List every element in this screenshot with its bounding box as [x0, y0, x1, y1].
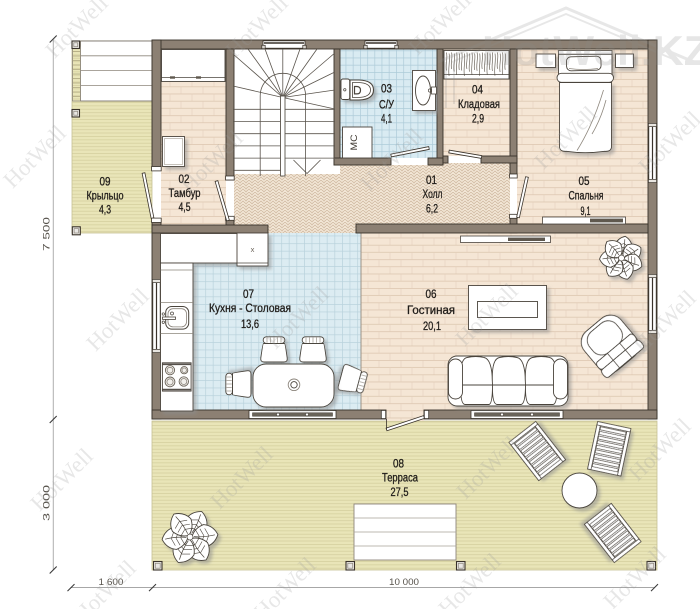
svg-text:HotWell: HotWell — [0, 120, 71, 192]
svg-text:27,5: 27,5 — [391, 487, 409, 499]
svg-text:Кладовая: Кладовая — [458, 99, 500, 111]
svg-text:Крыльцо: Крыльцо — [87, 191, 124, 203]
svg-text:Спальня: Спальня — [569, 191, 604, 203]
svg-text:07: 07 — [243, 289, 254, 301]
svg-text:4,5: 4,5 — [179, 202, 191, 214]
svg-text:HotWell: HotWell — [25, 443, 97, 515]
svg-text:Терраса: Терраса — [382, 473, 418, 485]
svg-text:03: 03 — [381, 84, 392, 96]
svg-text:2,9: 2,9 — [472, 114, 484, 126]
svg-text:09: 09 — [100, 177, 111, 189]
svg-text:20,1: 20,1 — [423, 321, 441, 333]
svg-text:6,2: 6,2 — [426, 204, 438, 216]
svg-text:9,1: 9,1 — [581, 206, 591, 218]
svg-text:Кухня - Столовая: Кухня - Столовая — [209, 303, 291, 315]
svg-text:С/У: С/У — [379, 100, 395, 112]
svg-text:7 500: 7 500 — [42, 217, 53, 251]
svg-text:x: x — [251, 245, 255, 254]
svg-text:05: 05 — [579, 176, 590, 188]
svg-text:01: 01 — [426, 175, 437, 187]
svg-text:06: 06 — [426, 289, 437, 301]
svg-text:08: 08 — [393, 459, 404, 471]
svg-text:МС: МС — [349, 134, 359, 151]
svg-text:4,3: 4,3 — [99, 205, 111, 217]
svg-text:Гостиная: Гостиная — [407, 305, 455, 317]
svg-text:HotWell.KZ: HotWell.KZ — [482, 27, 700, 74]
svg-text:Холл: Холл — [423, 189, 443, 201]
svg-text:HotWell: HotWell — [81, 283, 153, 355]
svg-text:13,6: 13,6 — [241, 319, 259, 331]
svg-text:HotWell: HotWell — [68, 555, 140, 609]
svg-text:04: 04 — [472, 85, 484, 97]
svg-text:4,1: 4,1 — [381, 114, 392, 126]
svg-text:10 000: 10 000 — [389, 577, 419, 588]
